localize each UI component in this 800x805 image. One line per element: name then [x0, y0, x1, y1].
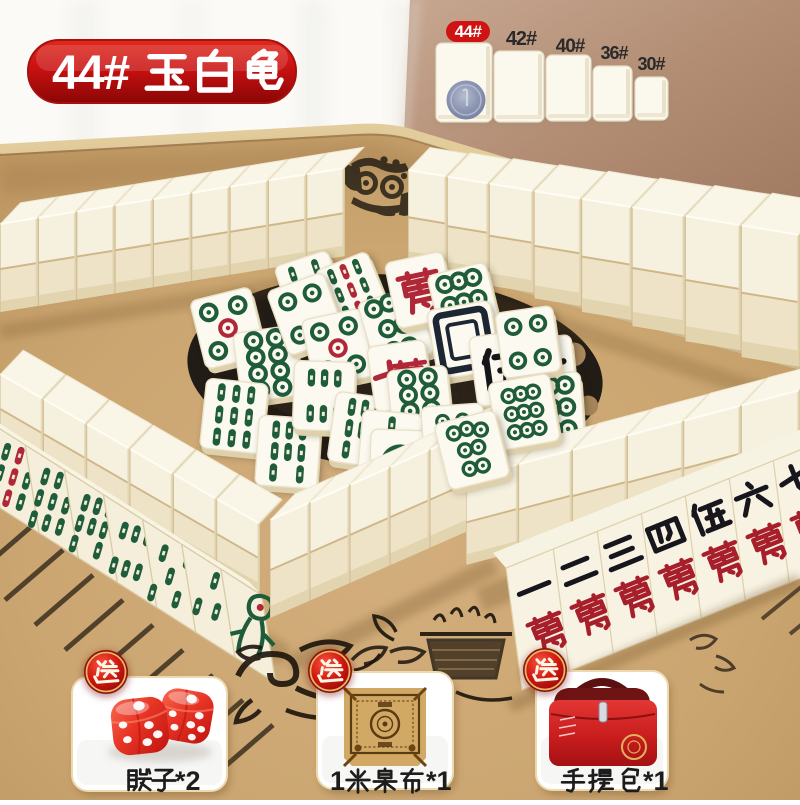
svg-text:36#: 36#	[600, 43, 628, 63]
svg-text:*1: *1	[643, 766, 669, 796]
svg-text:1: 1	[330, 766, 345, 796]
svg-text:*2: *2	[175, 766, 201, 796]
svg-text:40#: 40#	[556, 36, 586, 57]
svg-text:44#: 44#	[52, 47, 129, 100]
svg-text:*1: *1	[426, 766, 452, 796]
svg-text:30#: 30#	[637, 54, 665, 74]
svg-text:44#: 44#	[455, 22, 483, 41]
svg-text:42#: 42#	[506, 28, 537, 50]
